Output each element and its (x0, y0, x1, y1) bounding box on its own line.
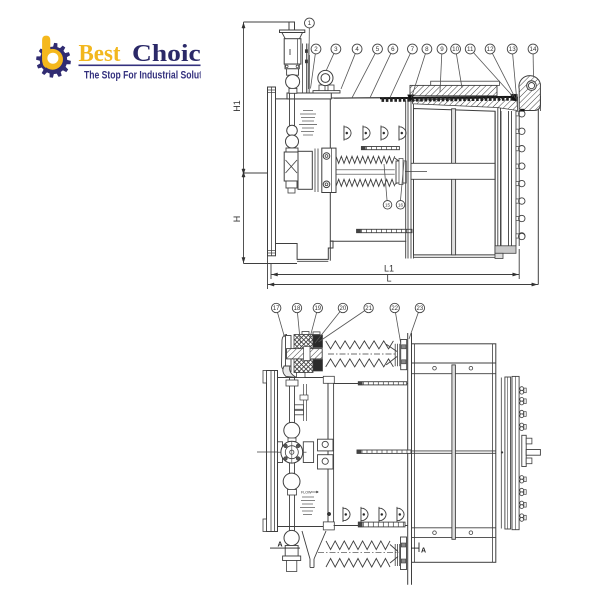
svg-text:12: 12 (487, 46, 494, 53)
svg-text:8: 8 (425, 46, 429, 53)
svg-text:13: 13 (509, 46, 516, 53)
svg-text:Choic: Choic (132, 40, 201, 67)
svg-text:2: 2 (314, 46, 318, 53)
svg-text:H1: H1 (232, 100, 242, 112)
svg-text:5: 5 (376, 46, 380, 53)
svg-text:A: A (421, 548, 426, 555)
svg-text:17: 17 (273, 306, 280, 312)
svg-text:18: 18 (294, 306, 301, 312)
svg-text:23: 23 (417, 306, 424, 312)
svg-text:22: 22 (391, 306, 398, 312)
svg-text:9: 9 (440, 46, 444, 53)
svg-text:4: 4 (355, 46, 359, 53)
svg-text:L: L (386, 274, 391, 284)
svg-text:21: 21 (365, 306, 372, 312)
svg-text:10: 10 (452, 46, 459, 53)
svg-text:14: 14 (530, 46, 537, 53)
svg-text:The Stop For Industrial Solut: The Stop For Industrial Solut (84, 70, 202, 82)
svg-text:6: 6 (391, 46, 395, 53)
svg-text:16: 16 (398, 202, 404, 207)
svg-text:H: H (232, 216, 242, 223)
svg-text:FLOW: FLOW (301, 491, 312, 495)
svg-text:L1: L1 (384, 264, 394, 274)
svg-text:11: 11 (467, 46, 474, 53)
svg-text:Best: Best (79, 40, 122, 67)
svg-text:19: 19 (314, 306, 321, 312)
svg-text:A: A (277, 542, 282, 549)
svg-text:1: 1 (308, 20, 312, 27)
svg-text:20: 20 (340, 306, 347, 312)
svg-text:7: 7 (411, 46, 415, 53)
svg-text:3: 3 (334, 46, 338, 53)
svg-text:15: 15 (385, 202, 391, 207)
